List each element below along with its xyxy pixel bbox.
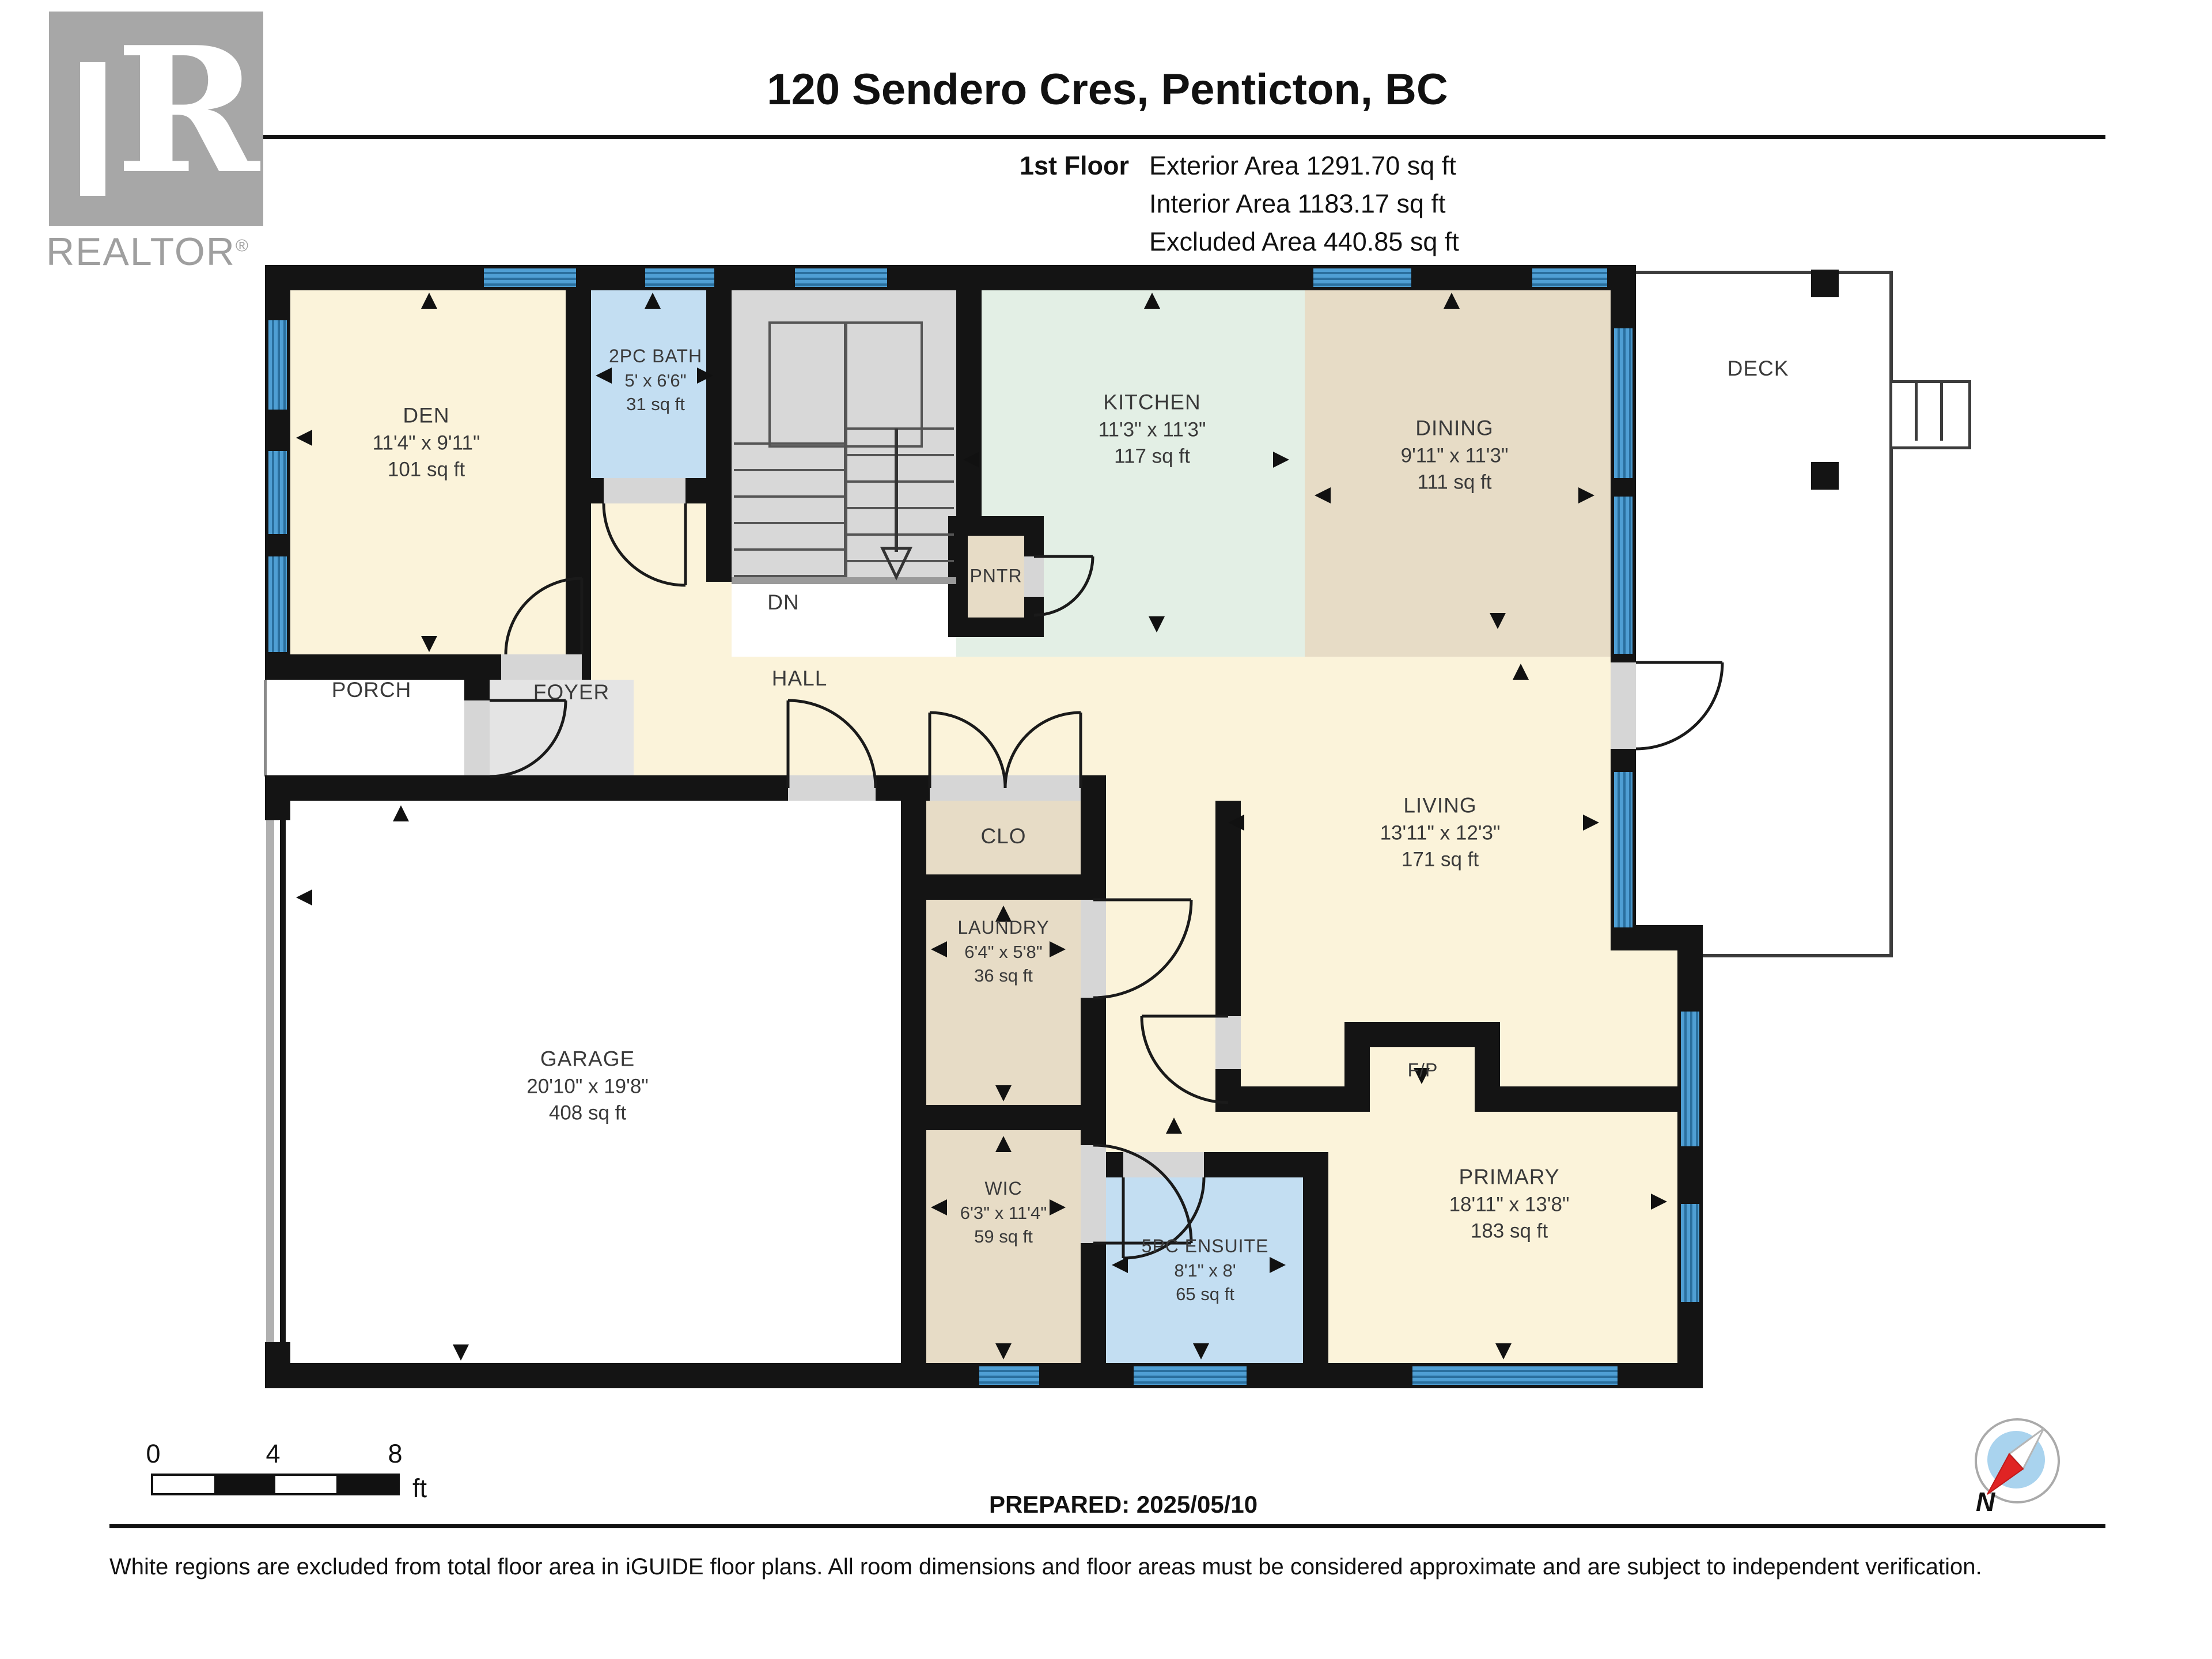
- window: [1614, 772, 1633, 927]
- direction-arrow: [963, 452, 979, 468]
- window: [268, 320, 287, 410]
- wall: [1303, 1152, 1328, 1363]
- door-opening: [1024, 556, 1044, 597]
- wall: [265, 775, 290, 820]
- compass-face: [1987, 1431, 2045, 1488]
- direction-arrow: [1444, 293, 1460, 309]
- room-label-dining: DINING9'11" x 11'3"111 sq ft: [1401, 414, 1509, 496]
- wall: [265, 265, 1636, 290]
- porch-outline: [264, 680, 267, 777]
- direction-arrow: [1144, 293, 1160, 309]
- direction-arrow: [393, 805, 409, 821]
- page-title: 120 Sendero Cres, Penticton, BC: [109, 65, 2105, 115]
- deck-exterior-stairs: [1889, 380, 1971, 449]
- window: [1681, 1012, 1699, 1146]
- room-label-kitchen: KITCHEN11'3" x 11'3"117 sq ft: [1099, 388, 1206, 470]
- room-label-garage: GARAGE20'10" x 19'8"408 sq ft: [527, 1044, 648, 1127]
- window: [1134, 1366, 1247, 1385]
- room-label-bath: 2PC BATH5' x 6'6"31 sq ft: [609, 344, 702, 416]
- realtor-logo-letter: R: [116, 24, 259, 197]
- direction-arrow: [1495, 1343, 1512, 1359]
- wall: [706, 265, 732, 582]
- direction-arrow: [1112, 1257, 1128, 1273]
- floor-plan-page: R REALTOR® 120 Sendero Cres, Penticton, …: [0, 0, 2212, 1659]
- direction-arrow: [421, 636, 437, 652]
- realtor-logo-bar: [80, 62, 105, 196]
- window: [1532, 268, 1607, 287]
- exterior-area-stat: Exterior Area 1291.70 sq ft: [1149, 151, 1456, 181]
- direction-arrow: [1651, 1194, 1667, 1210]
- direction-arrow: [931, 941, 947, 957]
- window: [484, 268, 576, 287]
- wall: [566, 265, 591, 680]
- direction-arrow: [995, 1343, 1012, 1359]
- direction-arrow: [1166, 1118, 1182, 1134]
- door-opening: [501, 654, 582, 680]
- deck-post: [1811, 462, 1839, 490]
- scale-bar: [151, 1474, 400, 1495]
- direction-arrow: [421, 293, 437, 309]
- realtor-wordmark: REALTOR®: [46, 229, 249, 274]
- direction-arrow: [1050, 1199, 1066, 1215]
- window: [268, 556, 287, 652]
- vestibule-floor: [1106, 801, 1215, 1177]
- scale-unit: ft: [412, 1474, 427, 1503]
- scale-tick-4: 4: [266, 1439, 280, 1469]
- direction-arrow: [1583, 815, 1599, 831]
- room-label-primary: PRIMARY18'11" x 13'8"183 sq ft: [1449, 1162, 1570, 1245]
- direction-arrow: [296, 430, 312, 446]
- door-opening: [1123, 1152, 1204, 1177]
- direction-arrow: [1270, 1257, 1286, 1273]
- room-label-porch: PORCH: [332, 676, 412, 704]
- room-label-pntr: PNTR: [969, 564, 1022, 589]
- window: [1681, 1204, 1699, 1302]
- garage-door-line: [280, 820, 286, 1342]
- scale-tick-0: 0: [146, 1439, 160, 1469]
- room-label-laundry: LAUNDRY6'4" x 5'8"36 sq ft: [957, 915, 1049, 988]
- stairs-floor: [732, 290, 956, 582]
- direction-arrow: [1490, 613, 1506, 629]
- interior-area-stat: Interior Area 1183.17 sq ft: [1149, 189, 1446, 219]
- compass-north-label: N: [1976, 1486, 1995, 1517]
- wall: [1636, 925, 1703, 950]
- direction-arrow: [1513, 664, 1529, 680]
- room-label-living: LIVING13'11" x 12'3"171 sq ft: [1380, 791, 1501, 873]
- direction-arrow: [1228, 815, 1244, 831]
- direction-arrow: [1149, 616, 1165, 632]
- window: [1313, 268, 1411, 287]
- garage-door-line: [266, 820, 274, 1342]
- footer-divider: [109, 1524, 2105, 1528]
- room-label-foyer: FOYER: [533, 678, 609, 707]
- direction-arrow: [645, 293, 661, 309]
- prepared-date: PREPARED: 2025/05/10: [720, 1491, 1527, 1518]
- stairs-dn-label: DN: [767, 588, 799, 617]
- excluded-area-stat: Excluded Area 440.85 sq ft: [1149, 227, 1459, 257]
- wall: [956, 290, 982, 530]
- room-label-hall: HALL: [772, 664, 828, 693]
- direction-arrow: [453, 1344, 469, 1361]
- deck-post: [1811, 270, 1839, 297]
- door-opening: [464, 700, 490, 775]
- scale-tick-8: 8: [388, 1439, 402, 1469]
- realtor-logo-icon: R: [49, 12, 263, 226]
- window: [1614, 328, 1633, 478]
- header-divider: [109, 135, 2105, 139]
- door-opening: [1081, 1145, 1106, 1243]
- direction-arrow: [1578, 487, 1594, 503]
- door-opening: [604, 478, 685, 503]
- disclaimer-text: White regions are excluded from total fl…: [109, 1554, 2105, 1580]
- room-label-deck: DECK: [1728, 354, 1789, 383]
- window: [979, 1366, 1039, 1385]
- direction-arrow: [1193, 1343, 1209, 1359]
- direction-arrow: [931, 1199, 947, 1215]
- wall: [1215, 801, 1241, 1016]
- door-opening: [1081, 900, 1106, 998]
- window: [795, 268, 887, 287]
- floor-label: 1st Floor: [945, 151, 1129, 181]
- door-opening: [788, 775, 876, 801]
- direction-arrow: [296, 889, 312, 906]
- room-label-ensuite: 5PC ENSUITE8'1" x 8'65 sq ft: [1142, 1234, 1269, 1306]
- room-label-wic: WIC6'3" x 11'4"59 sq ft: [960, 1176, 1047, 1249]
- wall: [901, 1105, 1106, 1130]
- direction-arrow: [995, 1085, 1012, 1101]
- direction-arrow: [1315, 487, 1331, 503]
- window: [1412, 1366, 1618, 1385]
- door-opening: [930, 775, 1081, 801]
- fireplace-label: F/P: [1408, 1058, 1438, 1083]
- window: [645, 268, 714, 287]
- direction-arrow: [995, 1136, 1012, 1152]
- room-label-den: DEN11'4" x 9'11"101 sq ft: [373, 401, 480, 483]
- direction-arrow: [1273, 452, 1289, 468]
- room-label-clo: CLO: [980, 822, 1026, 851]
- window: [268, 451, 287, 534]
- window: [1614, 497, 1633, 654]
- door-opening: [1611, 662, 1636, 749]
- direction-arrow: [1050, 941, 1066, 957]
- wall: [901, 874, 1106, 900]
- door-opening: [1215, 1016, 1241, 1069]
